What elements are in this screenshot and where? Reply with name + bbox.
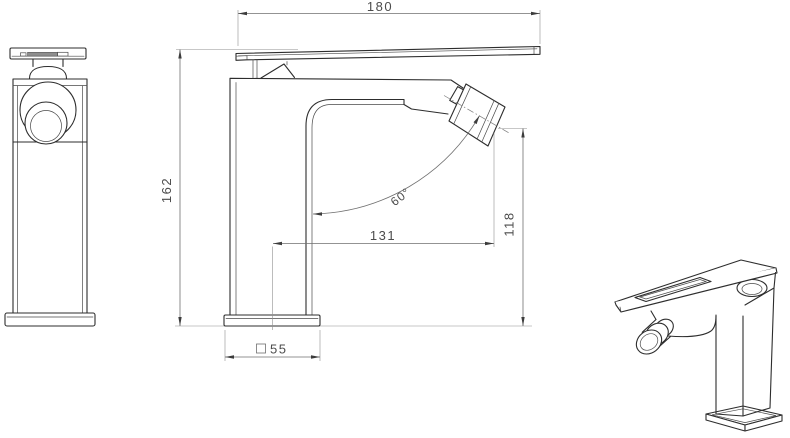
dimension-overall-width: 180 bbox=[238, 0, 540, 46]
cartridge-stem-front bbox=[30, 59, 67, 79]
dim-text-overall-width: 180 bbox=[367, 0, 393, 14]
front-view bbox=[5, 48, 95, 326]
perspective-view bbox=[615, 260, 782, 431]
dimension-base-square: 55 bbox=[225, 330, 320, 361]
lever-handle-side bbox=[236, 47, 540, 61]
dimension-outlet-height: 118 bbox=[498, 129, 527, 327]
side-view bbox=[175, 47, 540, 327]
dimension-outlet-angle: 60° bbox=[313, 116, 480, 216]
dim-text-outlet-angle: 60° bbox=[388, 185, 413, 209]
base-plate-side bbox=[224, 315, 320, 326]
aerator-3d bbox=[632, 316, 677, 359]
dim-text-outlet-height: 118 bbox=[502, 211, 517, 236]
dim-text-base-square: 55 bbox=[270, 342, 287, 357]
cartridge-stem-side bbox=[253, 60, 295, 78]
square-symbol bbox=[257, 344, 266, 353]
dim-text-overall-height: 162 bbox=[159, 177, 174, 203]
handle-bar-front bbox=[10, 48, 86, 59]
dim-text-horizontal-reach: 131 bbox=[370, 228, 396, 243]
base-plate-front bbox=[5, 313, 95, 326]
technical-drawing-canvas: 180 162 131 118 60° bbox=[0, 0, 790, 438]
dimension-overall-height: 162 bbox=[159, 50, 298, 327]
aerator-side bbox=[444, 84, 510, 146]
body-side bbox=[230, 78, 463, 315]
